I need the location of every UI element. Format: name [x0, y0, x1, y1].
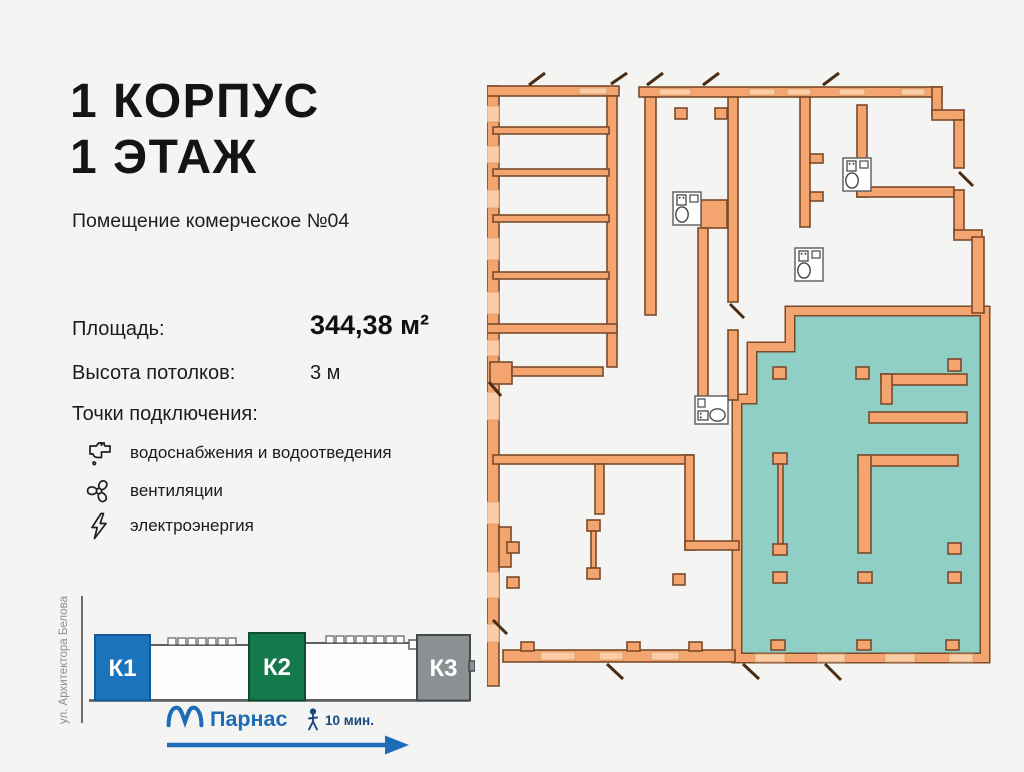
- ceiling-value: 3 м: [310, 362, 340, 385]
- walk-time: 10 мин.: [325, 713, 374, 728]
- lightning-icon: [84, 511, 114, 541]
- fan-icon: [84, 476, 114, 506]
- metro-logo-icon: [169, 708, 202, 726]
- building-block-k1[interactable]: К1: [95, 635, 150, 701]
- title-line-1: 1 КОРПУС: [70, 74, 320, 130]
- title-line-2: 1 ЭТАЖ: [70, 130, 320, 186]
- toilet-icon: [795, 248, 823, 281]
- unit-subtitle: Помещение комерческое №04: [72, 210, 349, 233]
- area-value: 344,38 м²: [310, 310, 429, 341]
- floor-plan-svg: [487, 72, 1007, 697]
- toilet-icon: [843, 158, 871, 191]
- block-label: К3: [430, 655, 458, 682]
- site-map: ул. Архитектора Белова К1: [55, 588, 475, 763]
- toilet-icon: [695, 396, 728, 424]
- toilet-icon: [673, 192, 701, 225]
- faucet-icon: [84, 438, 114, 468]
- connector-building: [305, 636, 418, 700]
- connector-building: [150, 638, 250, 700]
- connection-label: вентиляции: [130, 481, 223, 501]
- block-label: К1: [109, 655, 137, 682]
- connection-item-water: водоснабжения и водоотведения: [84, 438, 392, 468]
- direction-arrow: [167, 736, 409, 755]
- connections-label: Точки подключения:: [72, 403, 258, 426]
- floor-plan-page: 1 КОРПУС 1 ЭТАЖ Помещение комерческое №0…: [0, 0, 1024, 772]
- page-title: 1 КОРПУС 1 ЭТАЖ: [70, 74, 320, 185]
- building-block-k2[interactable]: К2: [249, 633, 305, 701]
- pedestrian-icon: [309, 708, 317, 729]
- connection-label: водоснабжения и водоотведения: [130, 443, 392, 463]
- connection-item-ventilation: вентиляции: [84, 476, 223, 506]
- connection-item-electricity: электроэнергия: [84, 511, 254, 541]
- building-block-k3[interactable]: К3: [409, 635, 475, 701]
- block-label: К2: [263, 654, 291, 681]
- ceiling-label: Высота потолков:: [72, 362, 235, 385]
- connection-label: электроэнергия: [130, 516, 254, 536]
- area-label: Площадь:: [72, 318, 165, 341]
- street-label: ул. Архитектора Белова: [58, 595, 70, 724]
- metro-name: Парнас: [210, 707, 287, 731]
